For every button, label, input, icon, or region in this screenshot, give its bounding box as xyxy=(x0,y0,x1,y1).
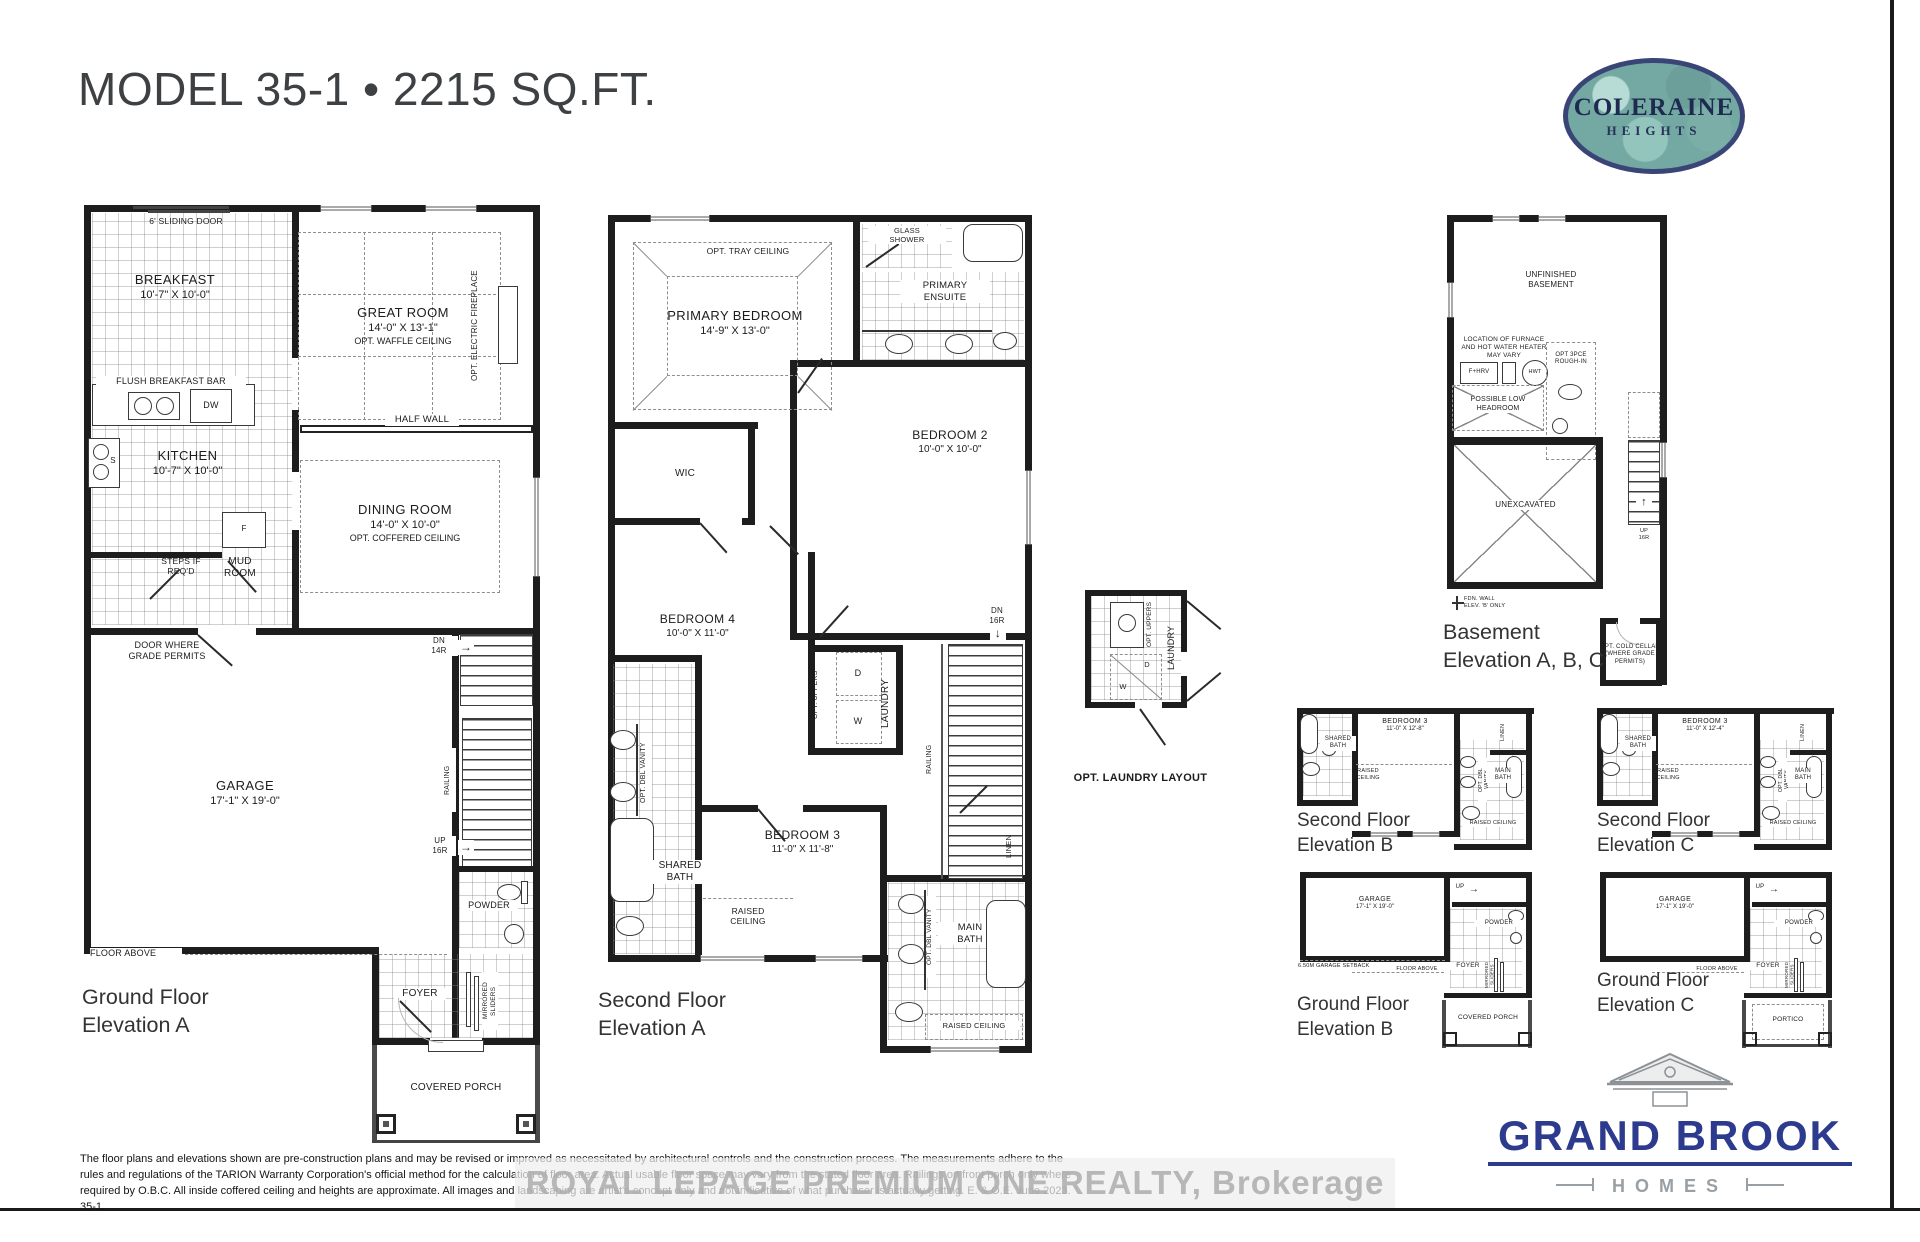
powder-label: POWDER xyxy=(1474,920,1524,927)
unexcavated-cross xyxy=(1454,445,1596,582)
wall xyxy=(896,645,903,755)
toilet xyxy=(616,916,644,936)
raised-ceiling-label: RAISED CEILING xyxy=(1762,820,1824,827)
covered-porch-label: COVERED PORCH xyxy=(1452,1014,1524,1022)
opt-dbl-vanity-label: OPT. DBL VANITY xyxy=(640,736,652,810)
porch-pillar xyxy=(1443,1032,1457,1046)
kitchen-label: KITCHEN 10'-7" X 10'-0" xyxy=(135,448,240,477)
dn-stairs-label: DN 14R xyxy=(420,636,458,656)
up-stairs-label: UP 16R xyxy=(1630,528,1658,541)
wall xyxy=(1085,702,1135,708)
toilet xyxy=(1558,384,1582,400)
wall-opening xyxy=(198,628,256,635)
bedroom3-label: BEDROOM 3 11'-0" X 12'-4" xyxy=(1666,718,1744,732)
up-label: UP xyxy=(1452,884,1468,891)
foyer-label: FOYER xyxy=(1450,962,1486,970)
furnace-label: F+HRV xyxy=(1461,369,1497,376)
up-label: UP xyxy=(1752,884,1768,891)
floor-plan-sheet: MODEL 35-1 • 2215 SQ.FT. COLERAINE HEIGH… xyxy=(0,0,1920,1242)
dn-arrow-icon: → xyxy=(458,640,474,655)
wall xyxy=(1826,708,1832,850)
wall xyxy=(1597,708,1834,714)
wall xyxy=(608,422,758,429)
wall xyxy=(1597,800,1658,806)
basement-caption: Basement Elevation A, B, C xyxy=(1443,618,1604,675)
wall-opening xyxy=(700,518,742,525)
wall xyxy=(1300,872,1306,962)
half-wall-label: HALF WALL xyxy=(385,414,459,426)
ground-b-caption: Ground Floor Elevation B xyxy=(1297,992,1409,1042)
raised-ceiling-line xyxy=(1356,764,1452,766)
sink xyxy=(898,944,924,964)
unexcavated-label: UNEXCAVATED xyxy=(1488,500,1563,510)
window xyxy=(425,205,477,212)
sink xyxy=(1460,776,1476,788)
wall xyxy=(1600,872,1832,878)
garage-label: GARAGE 17'-1" X 19'-0" xyxy=(190,778,300,807)
up-arrow-icon: → xyxy=(1766,884,1782,896)
toilet xyxy=(895,1002,923,1022)
powder-label: POWDER xyxy=(1774,920,1824,927)
sink xyxy=(898,894,924,914)
setback-label: 6.50M GARAGE SETBACK xyxy=(1298,963,1392,970)
sink xyxy=(885,334,913,354)
wall xyxy=(1447,437,1603,445)
door-leaf xyxy=(699,522,727,553)
toilet xyxy=(1762,806,1780,820)
sink xyxy=(1810,932,1822,944)
brokerage-watermark: ROYAL LEPAGE PREMIUM ONE REALTY, Brokera… xyxy=(515,1158,1395,1208)
wall xyxy=(84,628,91,954)
coleraine-heights-logo: COLERAINE HEIGHTS xyxy=(1563,58,1745,174)
furnace-note-label: LOCATION OF FURNACE AND HOT WATER HEATER… xyxy=(1460,336,1548,360)
hot-water-tank-label: HWT xyxy=(1522,369,1548,376)
wall xyxy=(372,947,379,1045)
wall xyxy=(1297,708,1534,714)
wall xyxy=(1754,844,1832,850)
window xyxy=(1712,831,1740,837)
wall-opening xyxy=(758,805,803,812)
builder-logo-flourish xyxy=(1556,1184,1592,1186)
wall xyxy=(808,748,903,755)
staircase xyxy=(1628,440,1660,525)
porch-pillar xyxy=(523,1121,529,1127)
fdn-tick xyxy=(1456,596,1458,610)
community-logo-name: COLERAINE xyxy=(1574,94,1734,122)
window xyxy=(1025,470,1032,545)
window xyxy=(1412,831,1440,837)
wall xyxy=(1447,437,1454,589)
opt-uppers-label: OPT. UPPERS xyxy=(1146,598,1156,650)
linen-label: LINEN xyxy=(1500,716,1510,748)
door-swing-arc xyxy=(1616,622,1639,645)
portico-pillar xyxy=(1743,1032,1757,1046)
staircase-dashed xyxy=(1628,392,1660,438)
wall xyxy=(1600,680,1662,686)
window xyxy=(1538,215,1566,222)
shared-bath-label: SHARED BATH xyxy=(1320,736,1356,751)
wall xyxy=(1181,590,1187,652)
dn-stairs-label: DN 16R xyxy=(980,606,1014,626)
raised-ceiling-label: RAISED CEILING xyxy=(706,906,790,927)
door-leaf xyxy=(1186,600,1221,630)
window xyxy=(1660,442,1667,478)
sink xyxy=(134,397,152,415)
linen-label: LINEN xyxy=(1800,716,1810,748)
pantry-label: S xyxy=(106,456,120,466)
steps-label: STEPS IF REQ'D xyxy=(150,556,212,577)
wall xyxy=(1085,590,1091,708)
window xyxy=(650,215,710,222)
rough-in-label: OPT 3PCE ROUGH-IN xyxy=(1548,352,1594,367)
electric-fireplace xyxy=(498,286,518,364)
up-arrow-icon: ↑ xyxy=(1636,496,1652,509)
second-b-caption: Second Floor Elevation B xyxy=(1297,808,1410,858)
wall xyxy=(853,215,860,367)
bedroom2-label: BEDROOM 2 10'-0" X 10'-0" xyxy=(895,428,1005,455)
opt-laundry-caption: OPT. LAUNDRY LAYOUT xyxy=(1068,772,1213,785)
window xyxy=(1492,215,1520,222)
sink xyxy=(1118,614,1136,632)
sink xyxy=(156,397,174,415)
builder-logo-name: GRAND BROOK xyxy=(1485,1112,1855,1160)
grade-door-label: DOOR WHERE GRADE PERMITS xyxy=(118,640,216,662)
covered-porch-label: COVERED PORCH xyxy=(390,1082,522,1094)
dishwasher-label: DW xyxy=(192,400,230,411)
wall xyxy=(1744,993,1832,998)
wall xyxy=(748,422,755,525)
window xyxy=(1447,282,1454,318)
dining-room-label: DINING ROOM 14'-0" X 10'-0" OPT. COFFERE… xyxy=(350,502,460,543)
toilet xyxy=(1462,806,1480,820)
laundry-label: LAUNDRY xyxy=(1166,620,1180,676)
bathtub xyxy=(1600,714,1618,754)
mirrored-sliders-label: MIRRORED SLIDERS xyxy=(1784,958,1793,992)
wall xyxy=(1490,750,1532,755)
community-logo-sub: HEIGHTS xyxy=(1607,123,1702,139)
pediment-icon xyxy=(1605,1050,1735,1108)
powder-label: POWDER xyxy=(460,900,518,911)
opt-dbl-vanity-label: OPT. DBL VANITY xyxy=(926,896,936,978)
wall-opening xyxy=(292,472,299,530)
wall xyxy=(1352,708,1358,806)
sink xyxy=(1760,756,1776,768)
wall xyxy=(608,655,702,662)
window xyxy=(320,205,372,212)
furnace xyxy=(1502,362,1516,384)
bathtub xyxy=(986,900,1026,988)
fireplace-label: OPT. ELECTRIC FIREPLACE xyxy=(470,268,484,384)
builder-logo-rule xyxy=(1488,1162,1852,1166)
main-bath-label: MAIN BATH xyxy=(1486,768,1520,783)
great-room-label: GREAT ROOM 14'-0" X 13'-1" OPT. WAFFLE C… xyxy=(343,305,463,346)
low-headroom-label: POSSIBLE LOW HEADROOM xyxy=(1456,396,1540,413)
wall xyxy=(1300,872,1532,878)
mirrored-sliders xyxy=(1800,962,1804,992)
dryer-label: D xyxy=(850,668,866,679)
setback-line xyxy=(1300,960,1445,962)
porch-edge xyxy=(372,1140,540,1143)
toilet xyxy=(1602,762,1620,776)
sink xyxy=(610,730,636,750)
bedroom3-label: BEDROOM 3 11'-0" X 12'-8" xyxy=(1366,718,1444,732)
opt-uppers-label: OPT. UPPERS xyxy=(812,655,824,735)
bathtub xyxy=(963,224,1023,262)
wall xyxy=(880,805,887,1050)
wall xyxy=(1454,844,1532,850)
toilet xyxy=(1302,762,1320,776)
wall xyxy=(533,205,540,1045)
garage-label: GARAGE 17'-1" X 19'-0" xyxy=(1330,896,1420,910)
sink xyxy=(1552,418,1568,434)
second-c-caption: Second Floor Elevation C xyxy=(1597,808,1710,858)
door-leaf xyxy=(1186,672,1221,702)
sliding-door-label: 6' SLIDING DOOR xyxy=(146,216,226,226)
raised-ceiling-line xyxy=(1656,764,1752,766)
foyer-label: FOYER xyxy=(1750,962,1786,970)
sliding-door xyxy=(148,210,230,213)
porch-pillar xyxy=(383,1121,389,1127)
window xyxy=(533,477,540,577)
ground-a-caption: Ground Floor Elevation A xyxy=(82,983,209,1040)
floor-above-label: FLOOR ABOVE xyxy=(90,948,182,959)
breakfast-label: BREAKFAST 10'-7" X 10'-0" xyxy=(120,272,230,301)
builder-logo-flourish xyxy=(1748,1184,1784,1186)
wall xyxy=(1085,590,1187,596)
toilet xyxy=(497,884,521,901)
flush-bar-label: FLUSH BREAKFAST BAR xyxy=(96,376,246,387)
sink xyxy=(93,464,109,480)
railing-label: RAILING xyxy=(444,748,456,812)
sink xyxy=(1760,776,1776,788)
wall xyxy=(84,205,91,635)
wall xyxy=(1297,800,1358,806)
wall xyxy=(808,645,903,652)
right-border xyxy=(1890,0,1894,1211)
wall xyxy=(1826,872,1832,998)
wic-label: WIC xyxy=(655,468,715,480)
shared-bath-label: SHARED BATH xyxy=(1620,736,1656,751)
wall xyxy=(1652,708,1658,806)
wall xyxy=(1596,437,1603,589)
sink xyxy=(610,782,636,802)
half-wall xyxy=(300,425,533,433)
mirrored-sliders xyxy=(474,976,479,1031)
bathtub xyxy=(1300,714,1318,754)
page-title: MODEL 35-1 • 2215 SQ.FT. xyxy=(78,62,657,116)
dryer-label: D xyxy=(1140,660,1154,669)
floor-above-line xyxy=(1352,972,1444,974)
raised-ceiling-label: RAISED CEILING xyxy=(1348,768,1388,781)
raised-ceiling-label: RAISED CEILING xyxy=(928,1021,1020,1030)
toilet xyxy=(993,332,1017,350)
sink xyxy=(1460,756,1476,768)
fdn-note-label: FDN. WALL ELEV. 'B' ONLY xyxy=(1464,596,1522,609)
sink xyxy=(945,334,973,354)
second-a-caption: Second Floor Elevation A xyxy=(598,986,726,1043)
wall xyxy=(1447,582,1603,589)
toilet xyxy=(521,881,528,904)
wall xyxy=(1790,750,1832,755)
sink xyxy=(1510,932,1522,944)
unfinished-basement-label: UNFINISHED BASEMENT xyxy=(1512,270,1590,290)
wall xyxy=(1600,872,1606,962)
wall xyxy=(1526,872,1532,998)
mirrored-sliders xyxy=(466,972,471,1027)
railing-line xyxy=(941,644,943,879)
wall xyxy=(1454,708,1460,837)
mirrored-sliders-label: MIRRORED SLIDERS xyxy=(1484,958,1493,992)
up-arrow-icon: → xyxy=(458,840,474,855)
porch-pillar xyxy=(1518,1032,1532,1046)
builder-logo-flourish xyxy=(1592,1178,1594,1191)
primary-ensuite-label: PRIMARY ENSUITE xyxy=(900,280,990,303)
primary-bedroom-label: PRIMARY BEDROOM 14'-9" X 13'-0" xyxy=(655,308,815,337)
up-stairs-label: UP 16R xyxy=(424,836,456,856)
raised-ceiling-line xyxy=(703,898,793,900)
dn-arrow-icon: ↓ xyxy=(990,626,1006,641)
wall xyxy=(1444,993,1532,998)
raised-ceiling-label: RAISED CEILING xyxy=(1462,820,1524,827)
mirrored-sliders xyxy=(1500,962,1504,992)
portico-label: PORTICO xyxy=(1760,1016,1816,1024)
builder-logo-sub: HOMES xyxy=(1485,1176,1855,1197)
wall xyxy=(1754,708,1760,837)
garage-label: GARAGE 17'-1" X 19'-0" xyxy=(1630,896,1720,910)
washer-label: W xyxy=(1116,682,1130,691)
wall xyxy=(1752,902,1826,907)
mirrored-sliders-label: MIRRORED SLIDERS xyxy=(482,972,498,1030)
wall xyxy=(1600,956,1750,962)
vanity-counter xyxy=(862,330,992,332)
bedroom4-label: BEDROOM 4 10'-0" X 11'-0" xyxy=(640,612,755,639)
wall xyxy=(1526,708,1532,850)
window xyxy=(700,955,765,962)
tile-floor xyxy=(613,664,695,954)
main-bath-label: MAIN BATH xyxy=(1786,768,1820,783)
sliding-door xyxy=(133,206,229,209)
wall xyxy=(1452,902,1526,907)
cold-cellar-label: OPT. COLD CELLAR (WHERE GRADE PERMITS) xyxy=(1600,644,1660,666)
bedroom3-label: BEDROOM 3 11'-0" X 11'-8" xyxy=(735,828,870,855)
window xyxy=(930,1046,1000,1053)
vanity-counter xyxy=(636,724,638,816)
laundry-label: LAUNDRY xyxy=(880,660,896,746)
linen-label: LINEN xyxy=(1004,822,1016,870)
railing-label: RAILING xyxy=(926,726,938,792)
raised-ceiling-label: RAISED CEILING xyxy=(1648,768,1688,781)
portico-pillar xyxy=(1818,1032,1832,1046)
fdn-tick xyxy=(1452,602,1464,604)
wall xyxy=(1162,702,1187,708)
up-arrow-icon: → xyxy=(1466,884,1482,896)
sink xyxy=(504,924,524,944)
washer-label: W xyxy=(850,716,866,727)
fridge-label: F xyxy=(236,524,252,534)
tray-ceiling-label: OPT. TRAY CEILING xyxy=(688,246,808,256)
ground-c-caption: Ground Floor Elevation C xyxy=(1597,968,1709,1018)
glass-shower-label: GLASS SHOWER xyxy=(868,226,946,244)
shared-bath-label: SHARED BATH xyxy=(648,860,712,884)
window xyxy=(815,955,863,962)
door-leaf xyxy=(1139,708,1166,745)
